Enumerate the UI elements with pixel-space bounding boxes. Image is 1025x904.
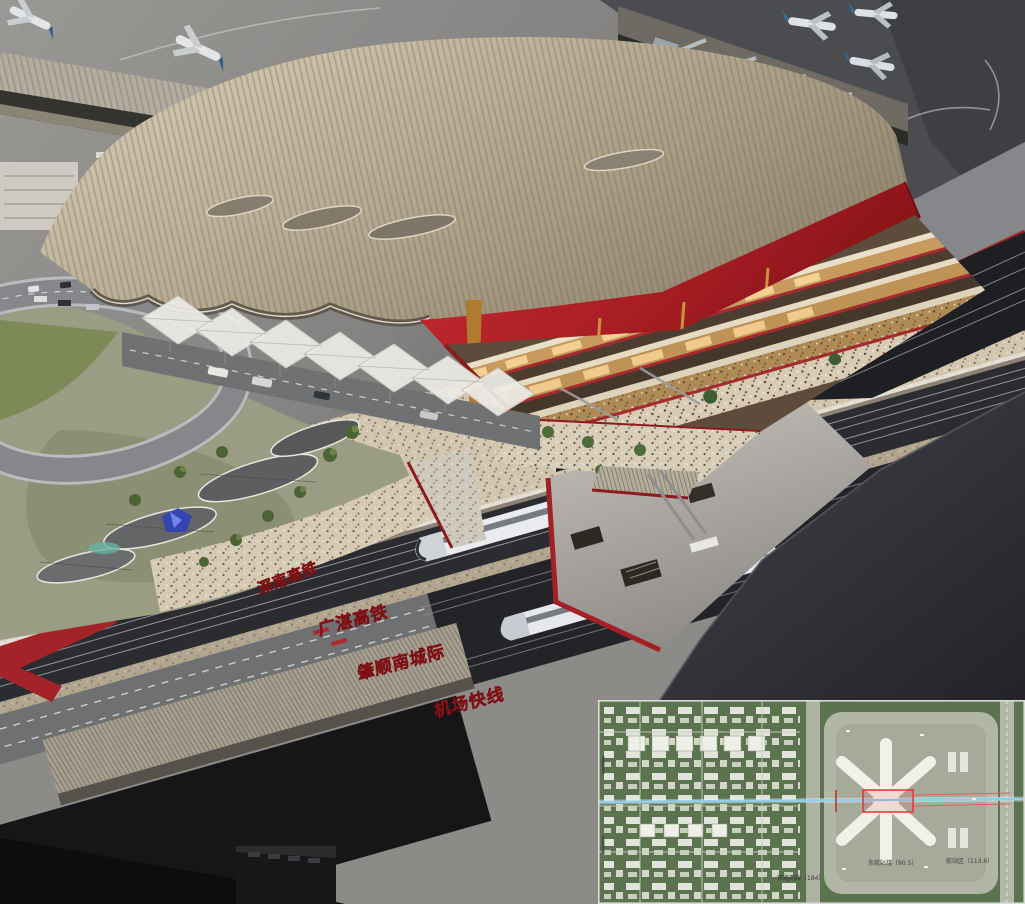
- inset-caption-mid: 东航站楼（90.5）: [868, 859, 917, 867]
- rendering-stage: 深南高铁 广湛高铁 肇顺南城际 机场快线: [0, 0, 1025, 904]
- inset-caption-right: 航站区（113.6）: [946, 857, 993, 865]
- inset-caption-left: 铁路两线（184）: [777, 874, 824, 882]
- dark-building: [236, 846, 336, 904]
- hub-rendering: 深南高铁 广湛高铁 肇顺南城际 机场快线: [0, 0, 1025, 904]
- inset-site-plan: 铁路两线（184） 东航站楼（90.5） 航站区（113.6）: [598, 700, 1025, 904]
- water-feature: [88, 542, 120, 554]
- inset-station-box: [863, 790, 913, 812]
